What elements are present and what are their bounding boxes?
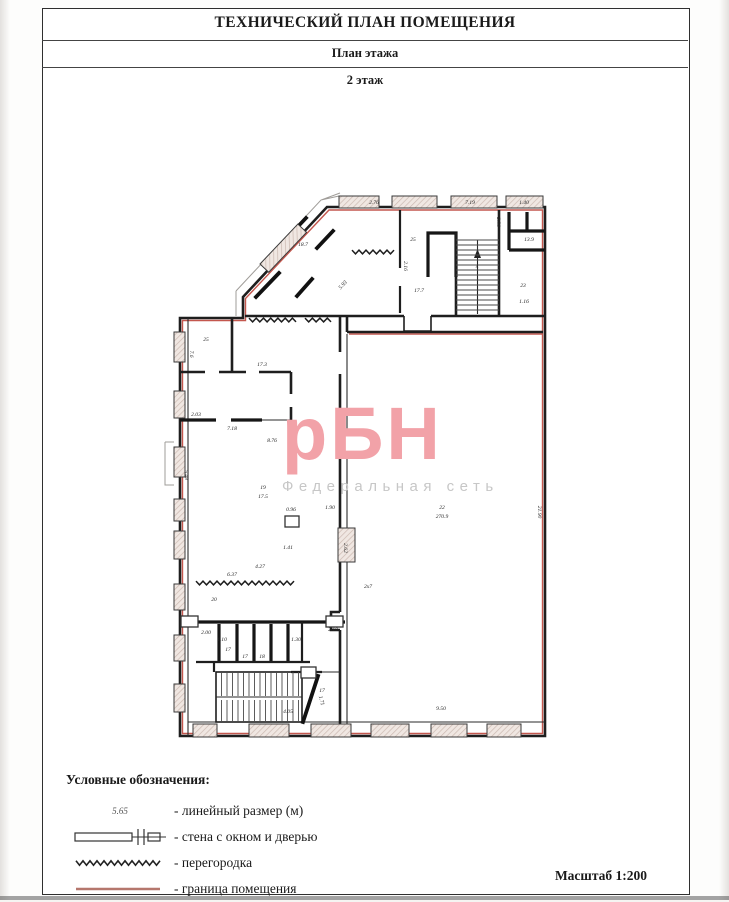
svg-text:21.90: 21.90 (536, 506, 542, 519)
legend: Условные обозначения: 5.65 - линейный ра… (66, 772, 486, 902)
svg-text:2x7: 2x7 (364, 584, 372, 590)
svg-text:270.9: 270.9 (436, 514, 449, 520)
page-edge-right (719, 0, 729, 900)
stair-treads-group (222, 240, 500, 722)
wall-window-door-icon (74, 829, 166, 845)
outer-wall (180, 207, 545, 736)
svg-text:8.76: 8.76 (267, 438, 277, 444)
svg-text:23: 23 (520, 283, 526, 289)
svg-text:25: 25 (203, 337, 209, 343)
door-box-bottom (301, 667, 316, 678)
legend-label-wall-window-door: - стена с окном и дверью (174, 829, 317, 845)
svg-text:1.40: 1.40 (519, 200, 529, 206)
svg-text:1.71: 1.71 (317, 695, 325, 706)
legend-label-partition: - перегородка (174, 855, 252, 871)
stair-vestibule (404, 316, 431, 331)
svg-text:13.9: 13.9 (524, 237, 534, 243)
svg-text:7.6: 7.6 (188, 351, 194, 358)
svg-text:2.56: 2.56 (495, 217, 501, 227)
svg-text:17.5: 17.5 (258, 494, 268, 500)
svg-text:2.16: 2.16 (402, 261, 408, 271)
svg-text:1.16: 1.16 (519, 299, 529, 305)
page-edge-left (0, 0, 10, 900)
svg-text:2.62: 2.62 (342, 543, 348, 553)
windows-group (174, 196, 543, 737)
legend-label-linear-dimension: - линейный размер (м) (174, 803, 303, 819)
svg-text:7.19: 7.19 (465, 200, 475, 206)
svg-text:25: 25 (410, 237, 416, 243)
small-box-mid (285, 516, 299, 527)
svg-text:1.41: 1.41 (283, 545, 293, 551)
legend-row-partition: - перегородка (66, 850, 486, 876)
svg-text:1.10: 1.10 (217, 637, 227, 643)
floor-plan-drawing: 2.767.191.4018.75.93252.1617.7413.9231.1… (0, 0, 729, 900)
closet-walls-top-right (509, 212, 545, 250)
svg-text:17.3: 17.3 (257, 362, 267, 368)
svg-text:20: 20 (211, 597, 217, 603)
diagonal-wall-bottom (303, 676, 318, 722)
svg-text:2.00: 2.00 (201, 630, 211, 636)
svg-text:2.10: 2.10 (328, 627, 338, 633)
svg-text:2.03: 2.03 (191, 412, 201, 418)
corridor-wall (331, 316, 340, 736)
svg-text:17: 17 (319, 688, 325, 694)
svg-text:17.7: 17.7 (414, 288, 424, 294)
boundary-icon (74, 885, 166, 893)
svg-text:0.96: 0.96 (286, 507, 296, 513)
wc-box (428, 233, 456, 277)
wall-window-box-right (326, 616, 343, 627)
svg-text:18.7: 18.7 (298, 242, 308, 248)
svg-text:7.18: 7.18 (227, 426, 237, 432)
hall-top-wall (347, 316, 543, 332)
svg-text:4.05: 4.05 (283, 709, 293, 715)
cubicle-walls (219, 624, 288, 662)
partition-icon (74, 858, 166, 868)
svg-text:18: 18 (259, 654, 265, 660)
svg-text:5.93: 5.93 (338, 280, 349, 291)
svg-text:17: 17 (225, 647, 231, 653)
page-edge-bottom (0, 896, 729, 900)
svg-text:4.27: 4.27 (255, 564, 265, 570)
partitions-group (196, 250, 394, 585)
legend-heading: Условные обозначения: (66, 772, 486, 788)
legend-label-boundary: - граница помещения (174, 881, 297, 897)
svg-text:1.90: 1.90 (325, 505, 335, 511)
svg-text:22: 22 (439, 505, 445, 511)
svg-text:1.30: 1.30 (291, 637, 301, 643)
legend-row-linear-dimension: 5.65 - линейный размер (м) (66, 798, 486, 824)
document-page: ТЕХНИЧЕСКИЙ ПЛАН ПОМЕЩЕНИЯ План этажа 2 … (0, 0, 729, 900)
svg-text:4: 4 (476, 264, 479, 270)
svg-text:6.37: 6.37 (227, 572, 237, 578)
legend-row-wall-window-door: - стена с окном и дверью (66, 824, 486, 850)
wall-window-box-left (181, 616, 198, 627)
svg-text:17: 17 (242, 654, 248, 660)
scale-label: Масштаб 1:200 (555, 868, 647, 884)
adjacent-outline-2 (165, 442, 174, 485)
svg-text:5.48: 5.48 (183, 470, 189, 480)
svg-text:19: 19 (260, 485, 266, 491)
svg-text:9.50: 9.50 (436, 706, 446, 712)
svg-text:2.76: 2.76 (369, 200, 379, 206)
linear-dimension-sample: 5.65 (112, 806, 128, 816)
